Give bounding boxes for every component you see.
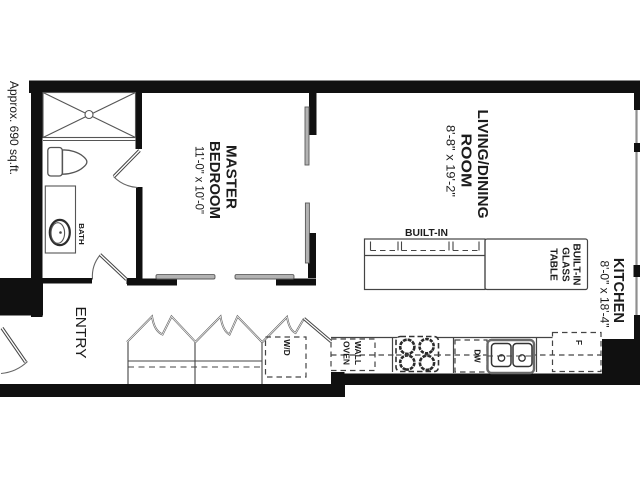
svg-text:Approx. 690 sq.ft.: Approx. 690 sq.ft. <box>7 81 21 175</box>
svg-text:ENTRY: ENTRY <box>72 307 88 359</box>
svg-text:GLASS: GLASS <box>560 247 571 282</box>
svg-text:TABLE: TABLE <box>548 248 559 281</box>
svg-text:BATH: BATH <box>77 223 86 245</box>
svg-text:KITCHEN: KITCHEN <box>610 258 627 323</box>
svg-text:ROOM: ROOM <box>458 134 475 188</box>
svg-text:MASTER: MASTER <box>223 145 240 209</box>
svg-text:WALL: WALL <box>353 341 362 365</box>
svg-text:8'-0" x 18'-4": 8'-0" x 18'-4" <box>597 261 611 328</box>
svg-text:W/D: W/D <box>282 339 291 356</box>
svg-text:LIVING/DINING: LIVING/DINING <box>474 110 491 219</box>
svg-text:BUILT-IN: BUILT-IN <box>571 244 582 286</box>
svg-text:BUILT-IN: BUILT-IN <box>405 228 448 239</box>
svg-text:8'-8" x 19'-2": 8'-8" x 19'-2" <box>444 125 458 197</box>
svg-text:OVEN: OVEN <box>342 341 351 365</box>
svg-text:BEDROOM: BEDROOM <box>206 141 223 219</box>
svg-text:DW: DW <box>473 349 482 363</box>
svg-text:11'-0" x 10'-0": 11'-0" x 10'-0" <box>193 146 207 214</box>
svg-text:F: F <box>574 340 584 345</box>
